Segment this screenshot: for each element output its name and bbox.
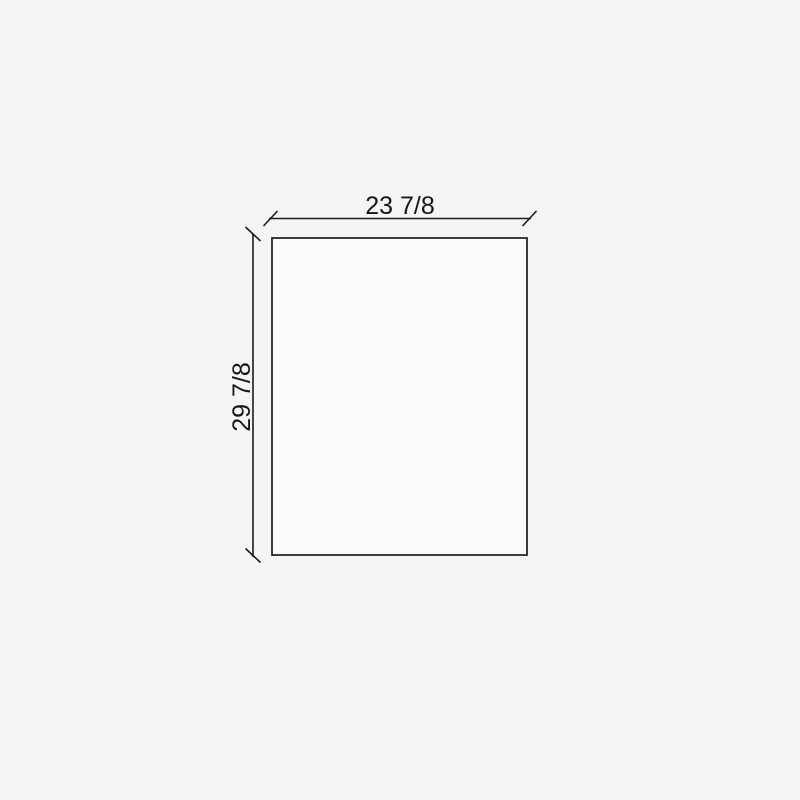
width-dimension: 23 7/8 [264,192,537,226]
width-dimension-label: 23 7/8 [365,192,435,220]
dimension-drawing-canvas: 23 7/8 29 7/8 [0,0,800,800]
panel-rectangle [272,238,527,555]
panel-dimension-drawing: 23 7/8 29 7/8 [0,0,800,800]
height-dimension: 29 7/8 [228,227,261,563]
height-dimension-label: 29 7/8 [228,362,256,432]
